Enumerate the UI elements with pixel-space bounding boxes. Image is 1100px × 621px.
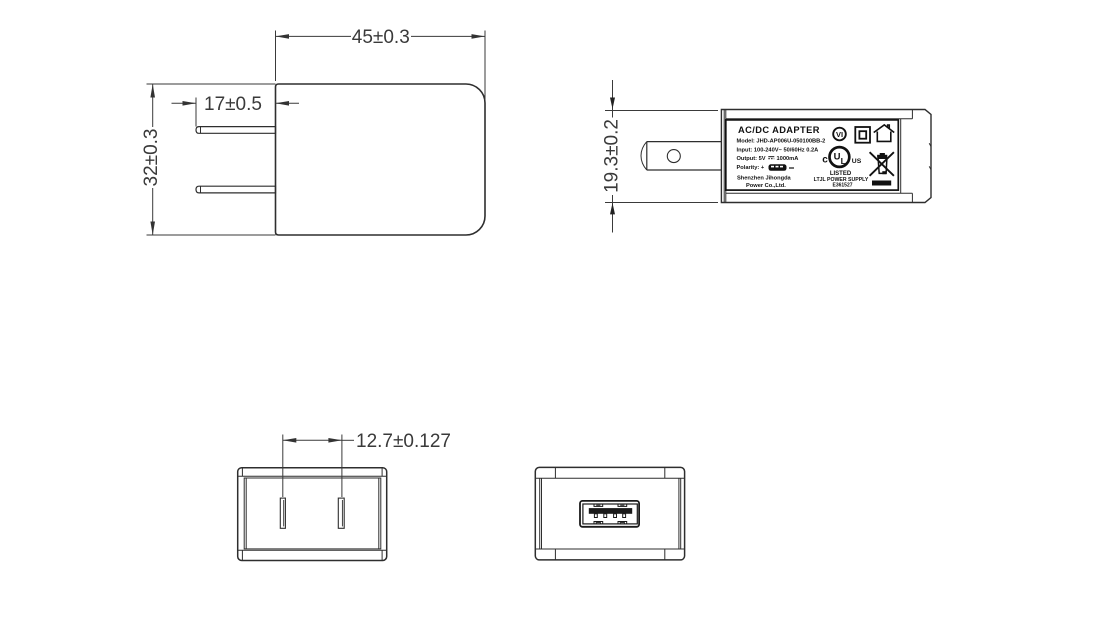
svg-text:Output: 5V: Output: 5V <box>737 156 766 162</box>
svg-text:Polarity: +: Polarity: + <box>737 165 765 171</box>
svg-text:Power Co.,Ltd.: Power Co.,Ltd. <box>746 183 786 189</box>
svg-text:12.7±0.127: 12.7±0.127 <box>356 431 451 452</box>
svg-text:Shenzhen Jihongda: Shenzhen Jihongda <box>737 176 792 182</box>
svg-text:45±0.3: 45±0.3 <box>352 27 410 48</box>
svg-text:VI: VI <box>836 130 843 139</box>
svg-text:E361527: E361527 <box>832 183 852 189</box>
svg-text:LISTED: LISTED <box>830 171 852 177</box>
svg-text:US: US <box>852 158 862 165</box>
svg-text:c: c <box>822 155 828 166</box>
svg-text:AC/DC ADAPTER: AC/DC ADAPTER <box>738 125 820 135</box>
svg-text:1000mA: 1000mA <box>777 156 799 162</box>
svg-text:L: L <box>841 156 846 166</box>
svg-text:Input: 100-240V~ 50/60Hz 0.2: Input: 100-240V~ 50/60Hz 0.2A <box>737 147 819 153</box>
svg-text:32±0.3: 32±0.3 <box>141 129 162 187</box>
svg-text:19.3±0.2: 19.3±0.2 <box>601 119 622 193</box>
svg-text:Model: JHD-AP006U-050100BB-2: Model: JHD-AP006U-050100BB-2 <box>737 138 826 144</box>
svg-text:17±0.5: 17±0.5 <box>204 94 262 115</box>
svg-text:U: U <box>834 151 841 162</box>
